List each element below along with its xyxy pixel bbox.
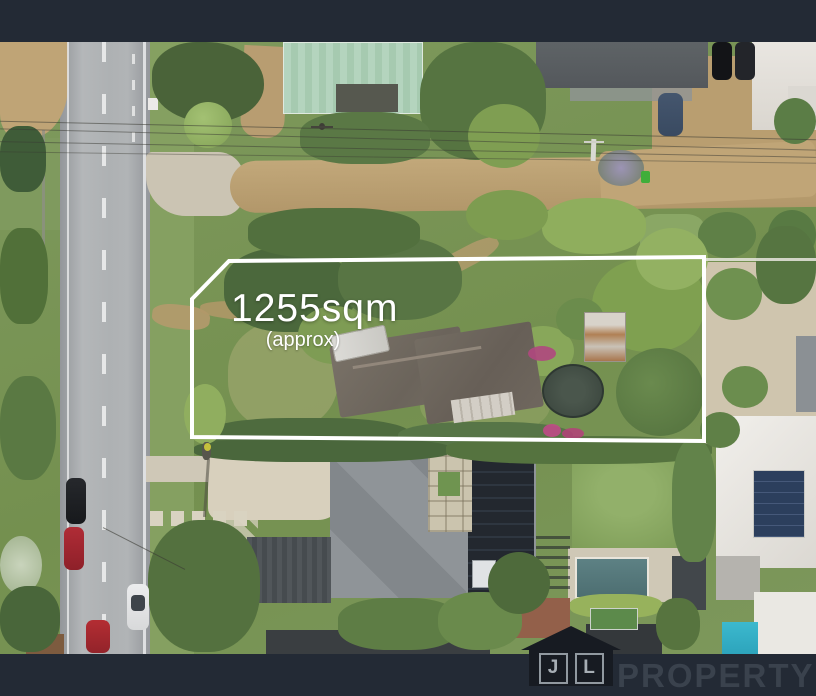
aerial-photo <box>0 0 816 696</box>
house-roof-icon <box>521 626 621 650</box>
trees-lot-top-3 <box>248 208 420 258</box>
tree-hedge-topleft <box>0 126 46 192</box>
white-building-bottomright <box>754 592 816 654</box>
white-sign <box>148 98 158 110</box>
hedge-row-south-1 <box>194 438 450 462</box>
fence-white-right <box>704 258 816 261</box>
road-center-dashes <box>102 42 106 654</box>
trees-west-bottom <box>0 586 60 652</box>
gray-roof-right-mid <box>796 336 816 412</box>
pole-crossarm-1 <box>311 126 333 128</box>
car-white-glass <box>131 595 145 611</box>
courtyard-tree-square <box>438 472 460 496</box>
cyan-pool <box>722 622 758 654</box>
car-red-1 <box>64 527 84 570</box>
car-black <box>66 478 86 524</box>
magenta-shrub-2 <box>543 424 561 437</box>
big-tree-right-lot <box>616 348 704 436</box>
tree-tall-ygreen-west <box>184 384 226 444</box>
shed <box>584 312 626 362</box>
approx-label: (approx) <box>228 329 378 352</box>
magenta-shrub-3 <box>562 428 584 439</box>
trees-ygreen-above-lot <box>542 198 646 254</box>
top-bar <box>0 0 816 42</box>
mint-house-dark-wing <box>336 84 398 112</box>
trees-south-1 <box>148 520 260 652</box>
logo-letter-l: L <box>575 653 604 684</box>
magenta-shrub-1 <box>528 346 556 361</box>
jl-logo: J L <box>521 626 621 686</box>
hedge-row-south-2 <box>446 436 712 464</box>
trees-south-5 <box>656 598 700 650</box>
neighbor-trees-court-1 <box>706 268 762 320</box>
trees-ygreen-above-lot-2 <box>466 190 548 240</box>
suv-dark-1 <box>712 42 732 80</box>
garden-west-1 <box>0 228 48 324</box>
neighbor-tree-court-3 <box>722 366 768 408</box>
logo-letter-j: J <box>539 653 568 684</box>
solar-array-right <box>753 470 805 538</box>
gray-roof-house-top <box>536 42 708 88</box>
road-edge-right <box>143 42 146 654</box>
trampoline <box>542 364 604 418</box>
road-side-dashes <box>132 54 135 150</box>
car-red-2 <box>86 620 110 653</box>
neighbor-trees-court-2 <box>756 226 816 304</box>
trees-bright-right-lot2 <box>636 228 708 290</box>
neighbor-tree-court-4 <box>700 412 740 448</box>
green-bin <box>641 171 650 183</box>
house-body-icon: J L <box>529 650 613 686</box>
area-label: 1255sqm <box>231 287 398 331</box>
brand-wordmark: PROPERTY <box>617 657 815 695</box>
car-blue <box>658 93 683 136</box>
tree-topright-white <box>774 98 816 144</box>
suv-dark-2 <box>735 42 755 80</box>
pole-south-cap <box>204 443 211 451</box>
lap-pool <box>575 557 649 599</box>
purple-shrub <box>598 150 644 186</box>
bottom-bar: PROPERTY <box>0 654 816 696</box>
trees-lawn-right <box>672 440 716 562</box>
garden-west-2 <box>0 376 56 480</box>
trees-south-4 <box>488 552 550 614</box>
pole-crossarm-2 <box>584 141 604 143</box>
